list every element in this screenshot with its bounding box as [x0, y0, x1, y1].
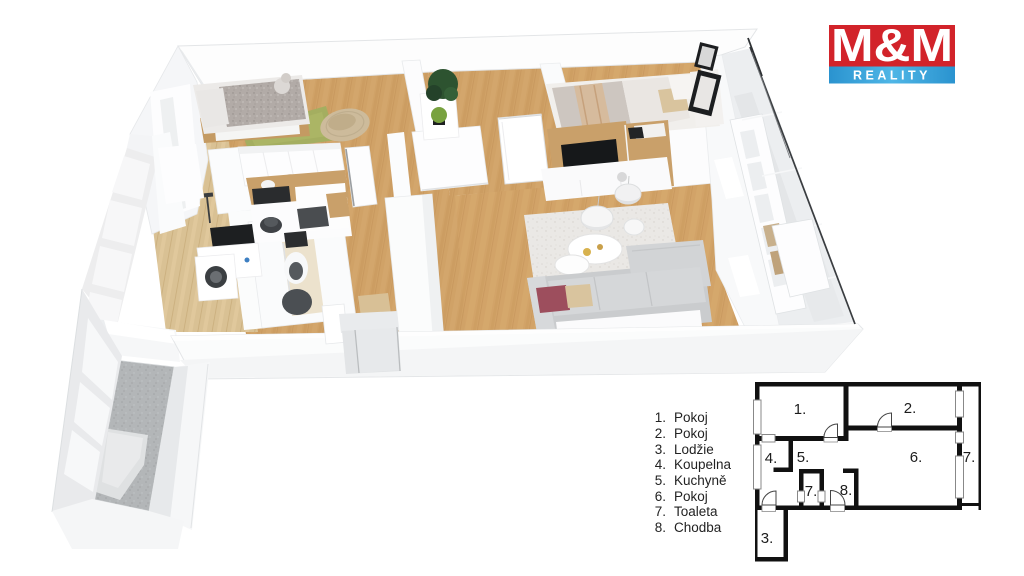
svg-text:Chodba: Chodba	[674, 520, 722, 535]
svg-text:1.: 1.	[794, 401, 807, 418]
svg-text:5.: 5.	[655, 473, 666, 488]
svg-text:8.: 8.	[655, 520, 666, 535]
svg-text:8.: 8.	[840, 482, 853, 499]
svg-text:7.: 7.	[963, 449, 976, 466]
svg-text:5.: 5.	[797, 449, 810, 466]
svg-text:Toaleta: Toaleta	[674, 504, 718, 519]
svg-text:4.: 4.	[765, 450, 778, 467]
svg-text:1.: 1.	[655, 410, 666, 425]
svg-text:Lodžie: Lodžie	[674, 442, 714, 457]
svg-text:3.: 3.	[655, 442, 666, 457]
svg-text:Pokoj: Pokoj	[674, 489, 708, 504]
svg-text:7.: 7.	[805, 483, 818, 500]
svg-text:Pokoj: Pokoj	[674, 410, 708, 425]
svg-text:Kuchyně: Kuchyně	[674, 473, 727, 488]
svg-text:Koupelna: Koupelna	[674, 457, 732, 472]
svg-text:6.: 6.	[655, 489, 666, 504]
svg-text:REALITY: REALITY	[853, 69, 931, 83]
svg-text:7.: 7.	[655, 504, 666, 519]
svg-text:2.: 2.	[655, 426, 666, 441]
svg-text:M&M: M&M	[831, 19, 953, 71]
svg-text:6.: 6.	[910, 449, 923, 466]
svg-text:2.: 2.	[904, 400, 917, 417]
svg-text:3.: 3.	[761, 530, 774, 547]
svg-text:4.: 4.	[655, 457, 666, 472]
svg-text:Pokoj: Pokoj	[674, 426, 708, 441]
